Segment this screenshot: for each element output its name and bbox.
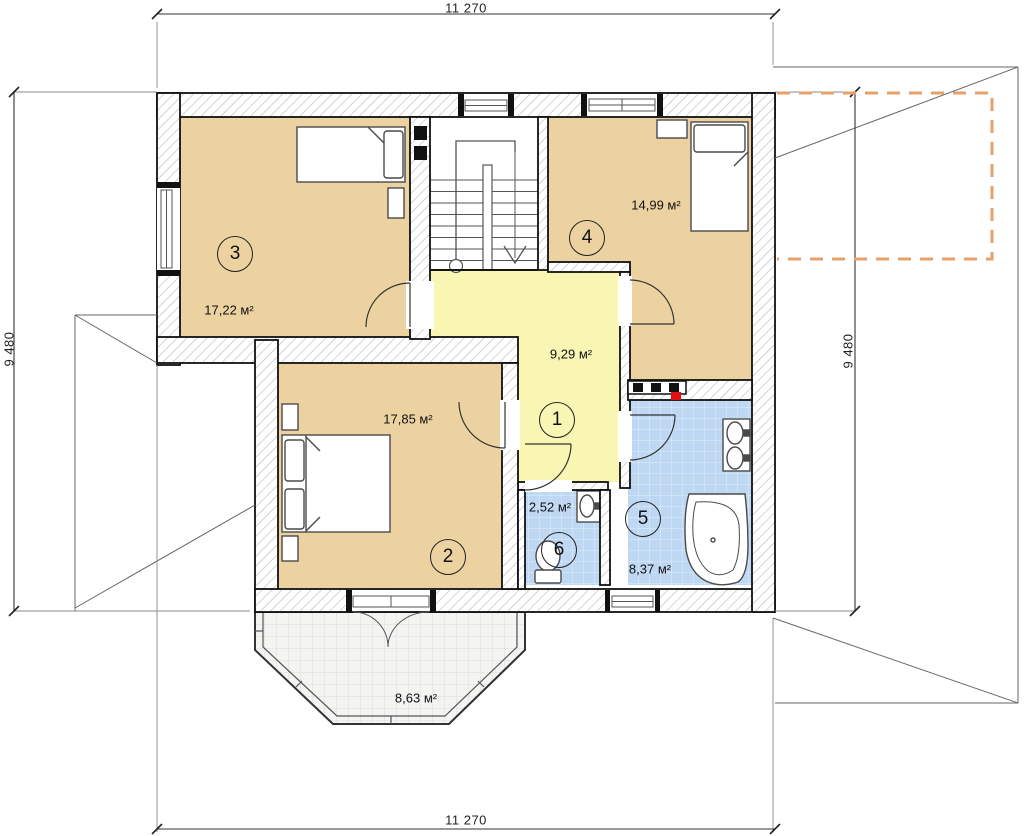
window-jamb <box>657 94 663 116</box>
wall-left-lower <box>255 340 278 612</box>
wall-bottom <box>255 589 775 612</box>
roof-overlay-dashed <box>777 93 992 259</box>
door-room2-opening <box>500 400 520 450</box>
flue-checker-2 <box>651 383 661 392</box>
roof-right <box>773 67 1018 703</box>
window-jamb <box>581 94 587 116</box>
window-jamb <box>458 94 464 116</box>
wall-room4-hall <box>548 262 630 272</box>
flue-checker-1 <box>633 383 643 392</box>
window-jamb <box>605 590 610 612</box>
wall-stair-left <box>410 117 430 283</box>
room-area-6: 2,52 м² <box>529 500 571 515</box>
room-number-5: 5 <box>625 501 661 537</box>
toilet-tank <box>535 570 561 583</box>
window-jamb <box>508 94 514 116</box>
wall-right <box>752 93 775 612</box>
floor-plan: 11 270 11 270 9 480 9 480 1 2 3 4 5 6 9,… <box>0 0 1024 836</box>
flue-square-1 <box>414 126 427 140</box>
bathroom-sink-2 <box>727 447 743 469</box>
pillow1-room2 <box>285 440 304 481</box>
door-wc-opening <box>525 480 572 492</box>
pillow-room4 <box>694 125 745 152</box>
nightstand2-room2 <box>282 536 298 561</box>
cabinet-room4 <box>657 120 687 138</box>
flue-checker-3 <box>669 383 679 392</box>
room-number-1: 1 <box>539 402 575 438</box>
wall-wc-left <box>518 490 525 589</box>
floor-plan-drawing <box>0 0 1024 836</box>
dimension-right-label: 9 480 <box>841 333 856 368</box>
faucet-1 <box>744 430 750 436</box>
room-number-3: 3 <box>217 236 253 272</box>
dimension-bottom-label: 11 270 <box>445 813 487 828</box>
window-jamb <box>157 270 180 276</box>
room-area-1: 9,29 м² <box>550 347 592 362</box>
balcony-area: 8,63 м² <box>395 691 437 706</box>
wall-stair-right <box>538 117 548 270</box>
balcony <box>255 612 525 724</box>
faucet-2 <box>744 455 750 461</box>
wall-wc-bath <box>600 490 610 585</box>
door-jamb <box>430 590 436 612</box>
room-number-2: 2 <box>430 539 466 575</box>
wall-room2-right <box>502 363 518 589</box>
nightstand-room3 <box>388 188 404 218</box>
dimension-left-label: 9 480 <box>2 331 17 366</box>
room-area-3: 17,22 м² <box>204 303 253 318</box>
balcony-outline <box>255 612 525 724</box>
window-jamb <box>655 590 660 612</box>
room-area-4: 14,99 м² <box>631 198 680 213</box>
wall-mid-band <box>157 337 518 363</box>
door-jamb <box>346 590 352 612</box>
bathroom-sink-1 <box>727 422 743 444</box>
room-area-2: 17,85 м² <box>383 412 432 427</box>
stair-stringer <box>483 165 492 270</box>
room-area-5: 8,37 м² <box>629 562 671 577</box>
door-room4-opening <box>618 276 632 326</box>
window-jamb <box>157 182 180 188</box>
room-number-4: 4 <box>569 220 605 256</box>
flue-square-2 <box>414 146 427 160</box>
pillow2-room2 <box>285 489 304 529</box>
dimension-top-label: 11 270 <box>445 1 487 16</box>
nightstand1-room2 <box>282 404 298 430</box>
flue-red-marker <box>671 392 681 400</box>
room-number-6: 6 <box>541 532 577 568</box>
pillow-room3 <box>384 131 403 178</box>
door-bathroom-opening <box>618 411 632 462</box>
